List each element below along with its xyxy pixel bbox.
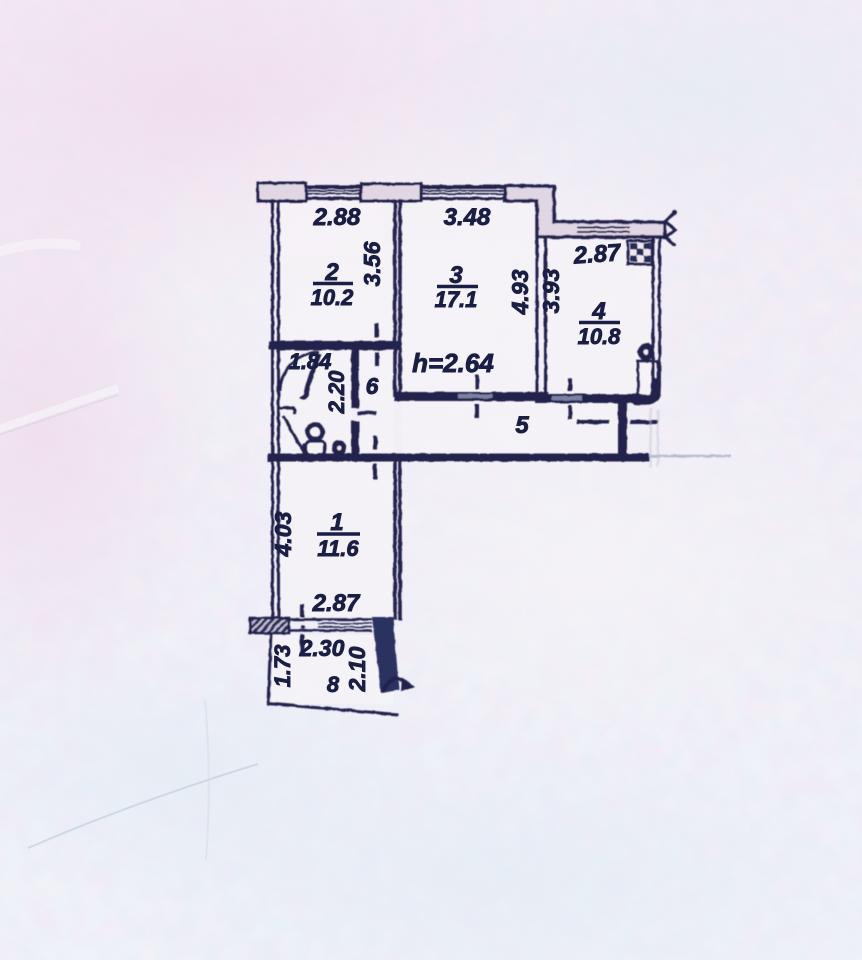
svg-text:3.93: 3.93 — [538, 268, 564, 313]
svg-text:1.84: 1.84 — [289, 349, 332, 374]
svg-text:10.2: 10.2 — [311, 285, 355, 310]
svg-text:11.6: 11.6 — [317, 536, 359, 561]
svg-text:3.48: 3.48 — [444, 204, 491, 231]
svg-text:2.87: 2.87 — [572, 239, 623, 269]
svg-text:4.03: 4.03 — [270, 511, 296, 557]
svg-text:8: 8 — [327, 672, 340, 697]
svg-text:10.8: 10.8 — [578, 324, 622, 349]
svg-text:2.20: 2.20 — [324, 370, 349, 415]
svg-text:1.73: 1.73 — [270, 645, 295, 688]
svg-text:6: 6 — [366, 373, 379, 399]
svg-text:2.10: 2.10 — [344, 646, 370, 692]
svg-text:2.30: 2.30 — [299, 635, 345, 661]
svg-text:5: 5 — [515, 412, 529, 439]
svg-text:3.56: 3.56 — [359, 241, 385, 286]
svg-text:2.87: 2.87 — [312, 590, 361, 617]
svg-text:17.1: 17.1 — [435, 287, 478, 312]
svg-text:1: 1 — [330, 509, 343, 536]
svg-text:2.88: 2.88 — [313, 204, 361, 231]
svg-text:4.93: 4.93 — [507, 269, 533, 315]
svg-text:h=2.64: h=2.64 — [412, 348, 494, 378]
